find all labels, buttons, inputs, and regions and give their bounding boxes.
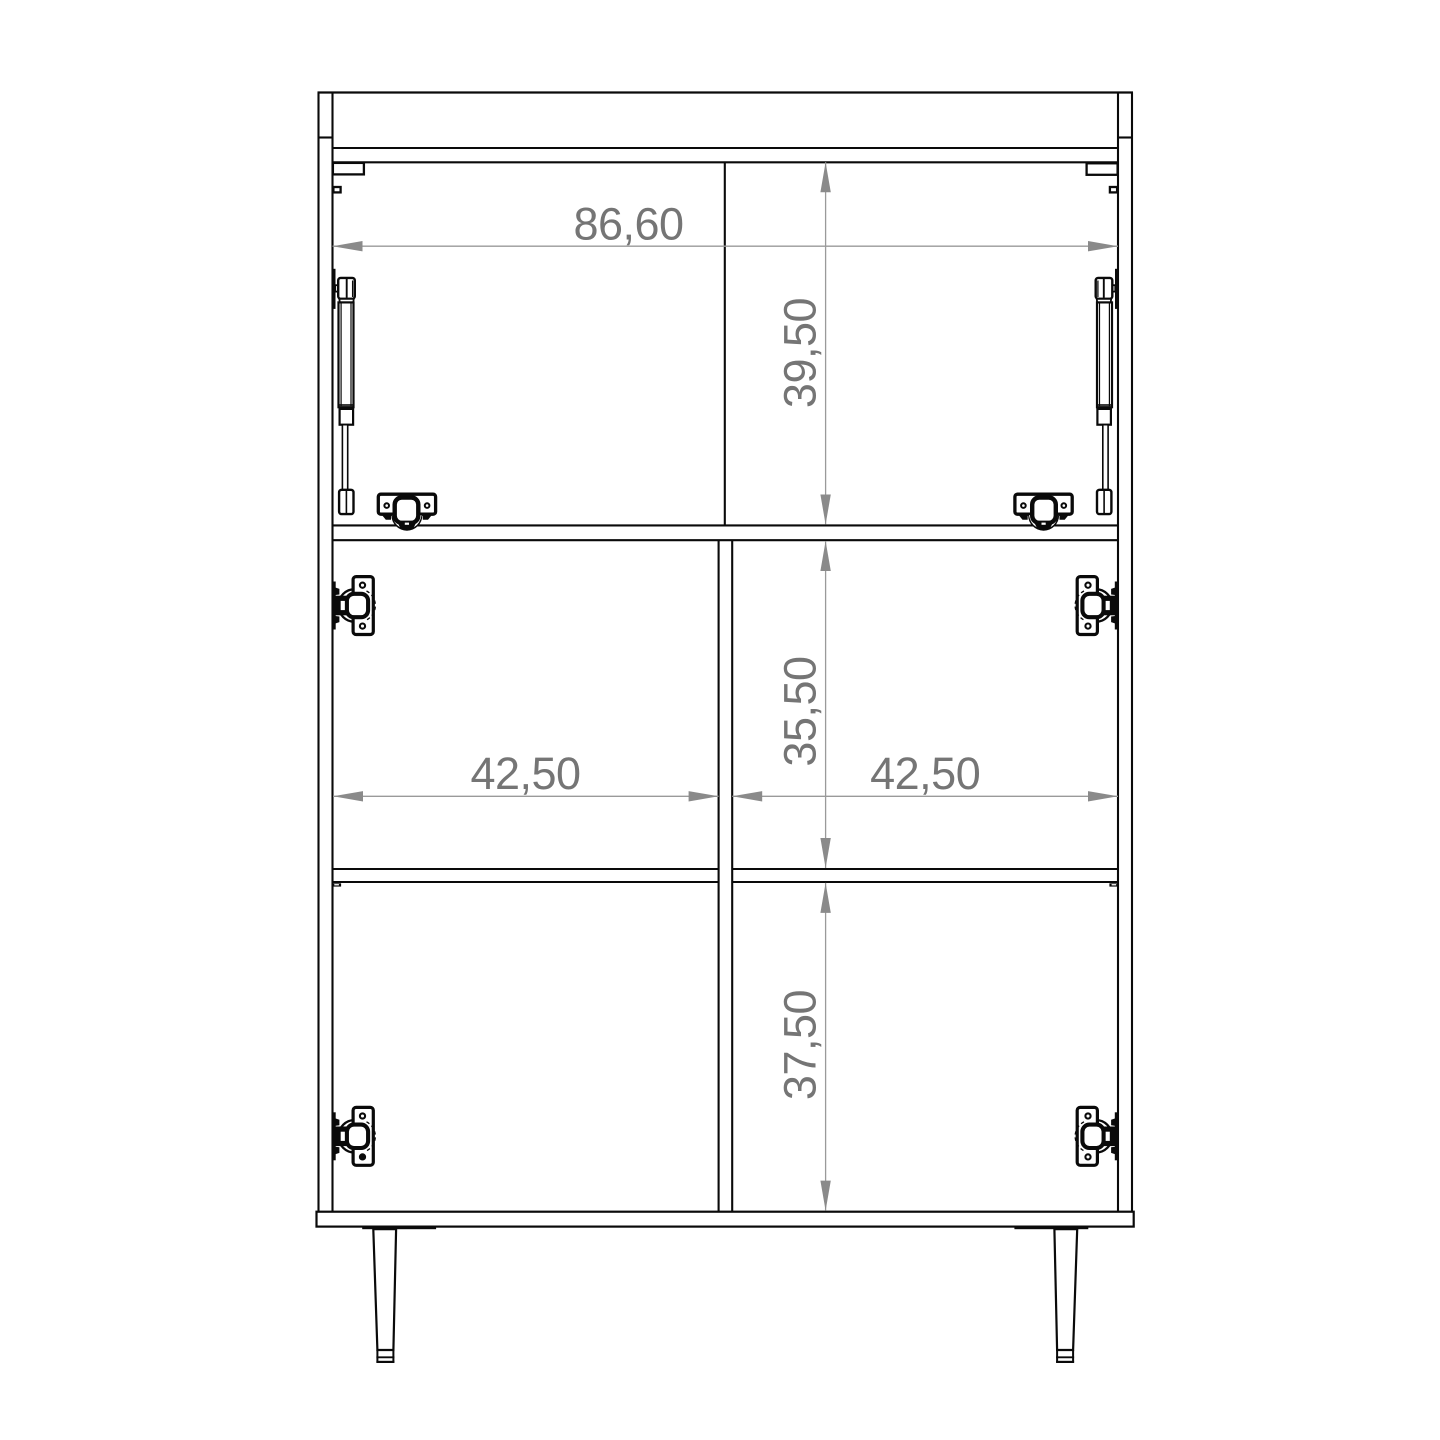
svg-text:37,50: 37,50	[775, 990, 826, 1100]
svg-text:86,60: 86,60	[573, 198, 683, 249]
svg-text:42,50: 42,50	[870, 748, 980, 799]
svg-text:35,50: 35,50	[775, 656, 826, 766]
svg-text:39,50: 39,50	[775, 298, 826, 408]
svg-text:42,50: 42,50	[470, 748, 580, 799]
